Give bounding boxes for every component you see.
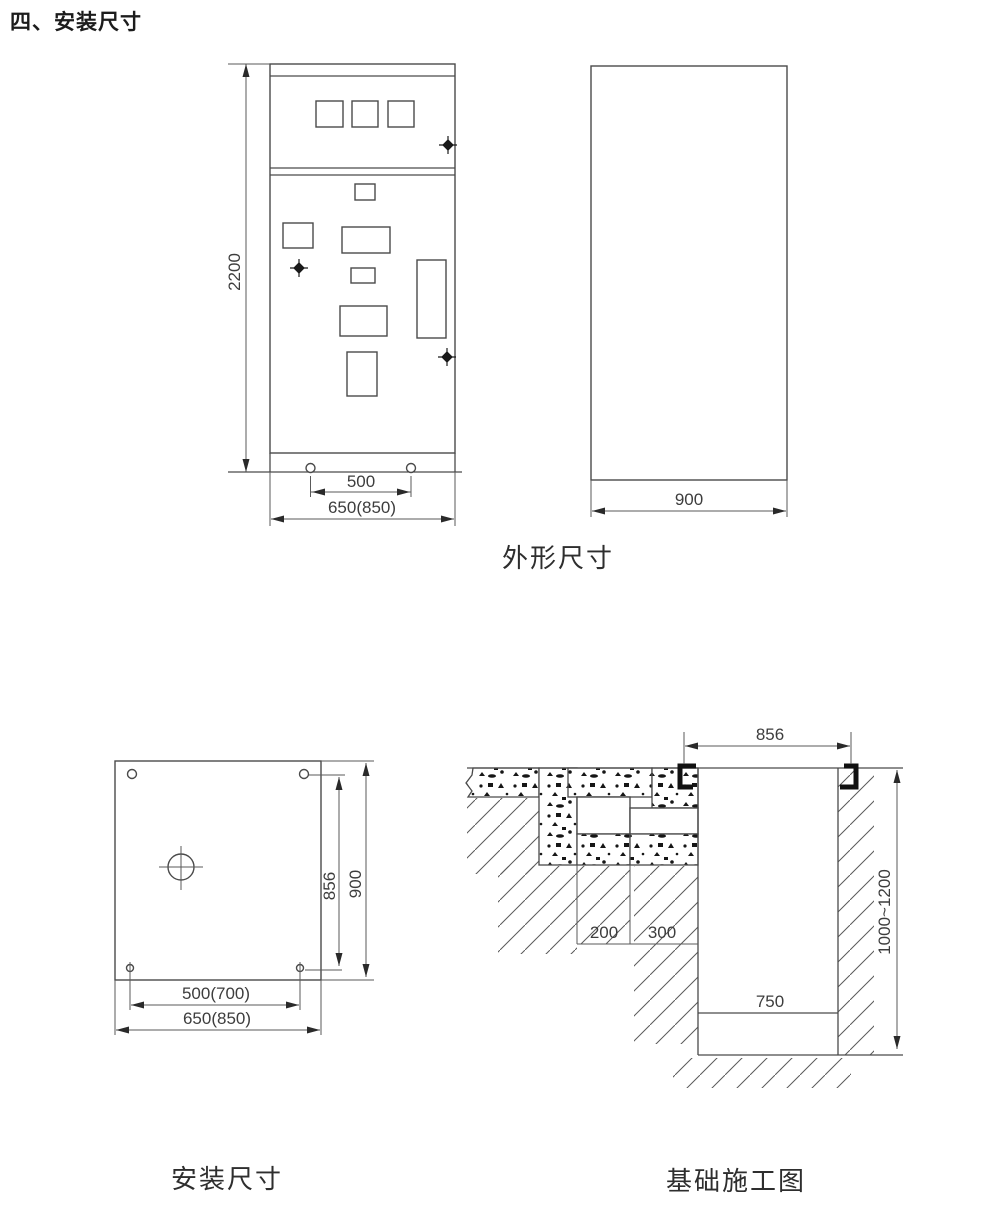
dim-900-side: 900 xyxy=(591,480,787,517)
dim-200-label: 200 xyxy=(590,923,618,942)
footing-right xyxy=(630,834,698,865)
dim-750-label: 750 xyxy=(756,992,784,1011)
dim-2200-label: 2200 xyxy=(225,253,244,291)
brick-course-left xyxy=(577,797,630,834)
dim-900-side-label: 900 xyxy=(675,490,703,509)
dimension-drawings: 2200 500 650(850) xyxy=(0,0,1008,1222)
dim-500-700-label: 500(700) xyxy=(182,984,250,1003)
dim-856-foundation-label: 856 xyxy=(756,725,784,744)
plan-hole-top-right xyxy=(300,770,309,779)
floor-slab-middle xyxy=(568,768,652,797)
brick-course-right xyxy=(630,808,698,834)
dim-900-plan: 900 xyxy=(346,763,370,977)
dim-1000-1200: 1000~1200 xyxy=(875,770,901,1049)
dim-856-plan-label: 856 xyxy=(320,872,339,900)
dim-650-850-plan-label: 650(850) xyxy=(183,1009,251,1028)
dim-2200: 2200 xyxy=(225,64,270,472)
front-foot-hole-right xyxy=(407,464,416,473)
caption-foundation-plan: 基础施工图 xyxy=(666,1166,806,1196)
dim-856-foundation: 856 xyxy=(684,725,851,764)
plan-outline xyxy=(115,761,321,980)
plan-hole-top-left xyxy=(128,770,137,779)
footing-left xyxy=(577,834,630,865)
floor-slab-left xyxy=(466,768,539,797)
dim-900-plan-label: 900 xyxy=(346,870,365,898)
side-view: 900 xyxy=(591,66,787,517)
foundation-section: 200 300 856 750 1000~1200 xyxy=(466,725,903,1088)
side-outline xyxy=(591,66,787,480)
dim-650-850-label: 650(850) xyxy=(328,498,396,517)
catalog-page: 四、安装尺寸 xyxy=(0,0,1008,1222)
dim-500-label: 500 xyxy=(347,472,375,491)
dim-856-plan: 856 xyxy=(320,777,343,966)
caption-outline-dims: 外形尺寸 xyxy=(502,543,614,573)
dim-500: 500 xyxy=(311,472,412,497)
caption-installation-dims: 安装尺寸 xyxy=(171,1164,283,1194)
front-foot-hole-left xyxy=(306,464,315,473)
installation-plan: 856 900 500(700) 650(850) xyxy=(115,761,374,1035)
front-view: 2200 500 650(850) xyxy=(225,64,462,526)
dim-650-850-plan: 650(850) xyxy=(116,1009,320,1034)
dim-300-label: 300 xyxy=(648,923,676,942)
dim-1000-1200-label: 1000~1200 xyxy=(875,869,894,955)
dim-500-700: 500(700) xyxy=(131,984,299,1009)
